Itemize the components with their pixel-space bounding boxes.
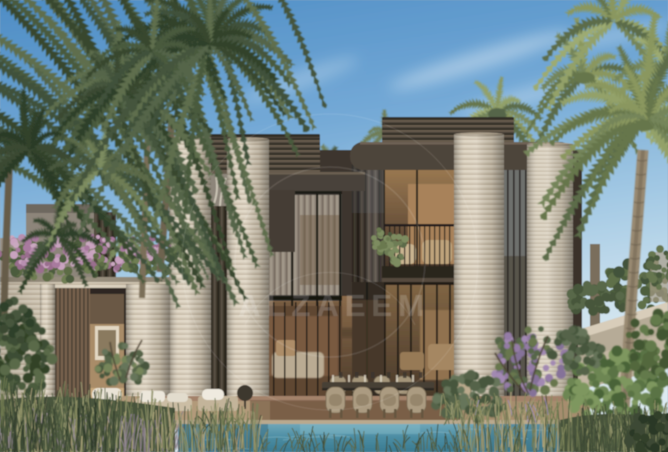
svg-text:ALZAEEM: ALZAEEM <box>238 288 430 323</box>
